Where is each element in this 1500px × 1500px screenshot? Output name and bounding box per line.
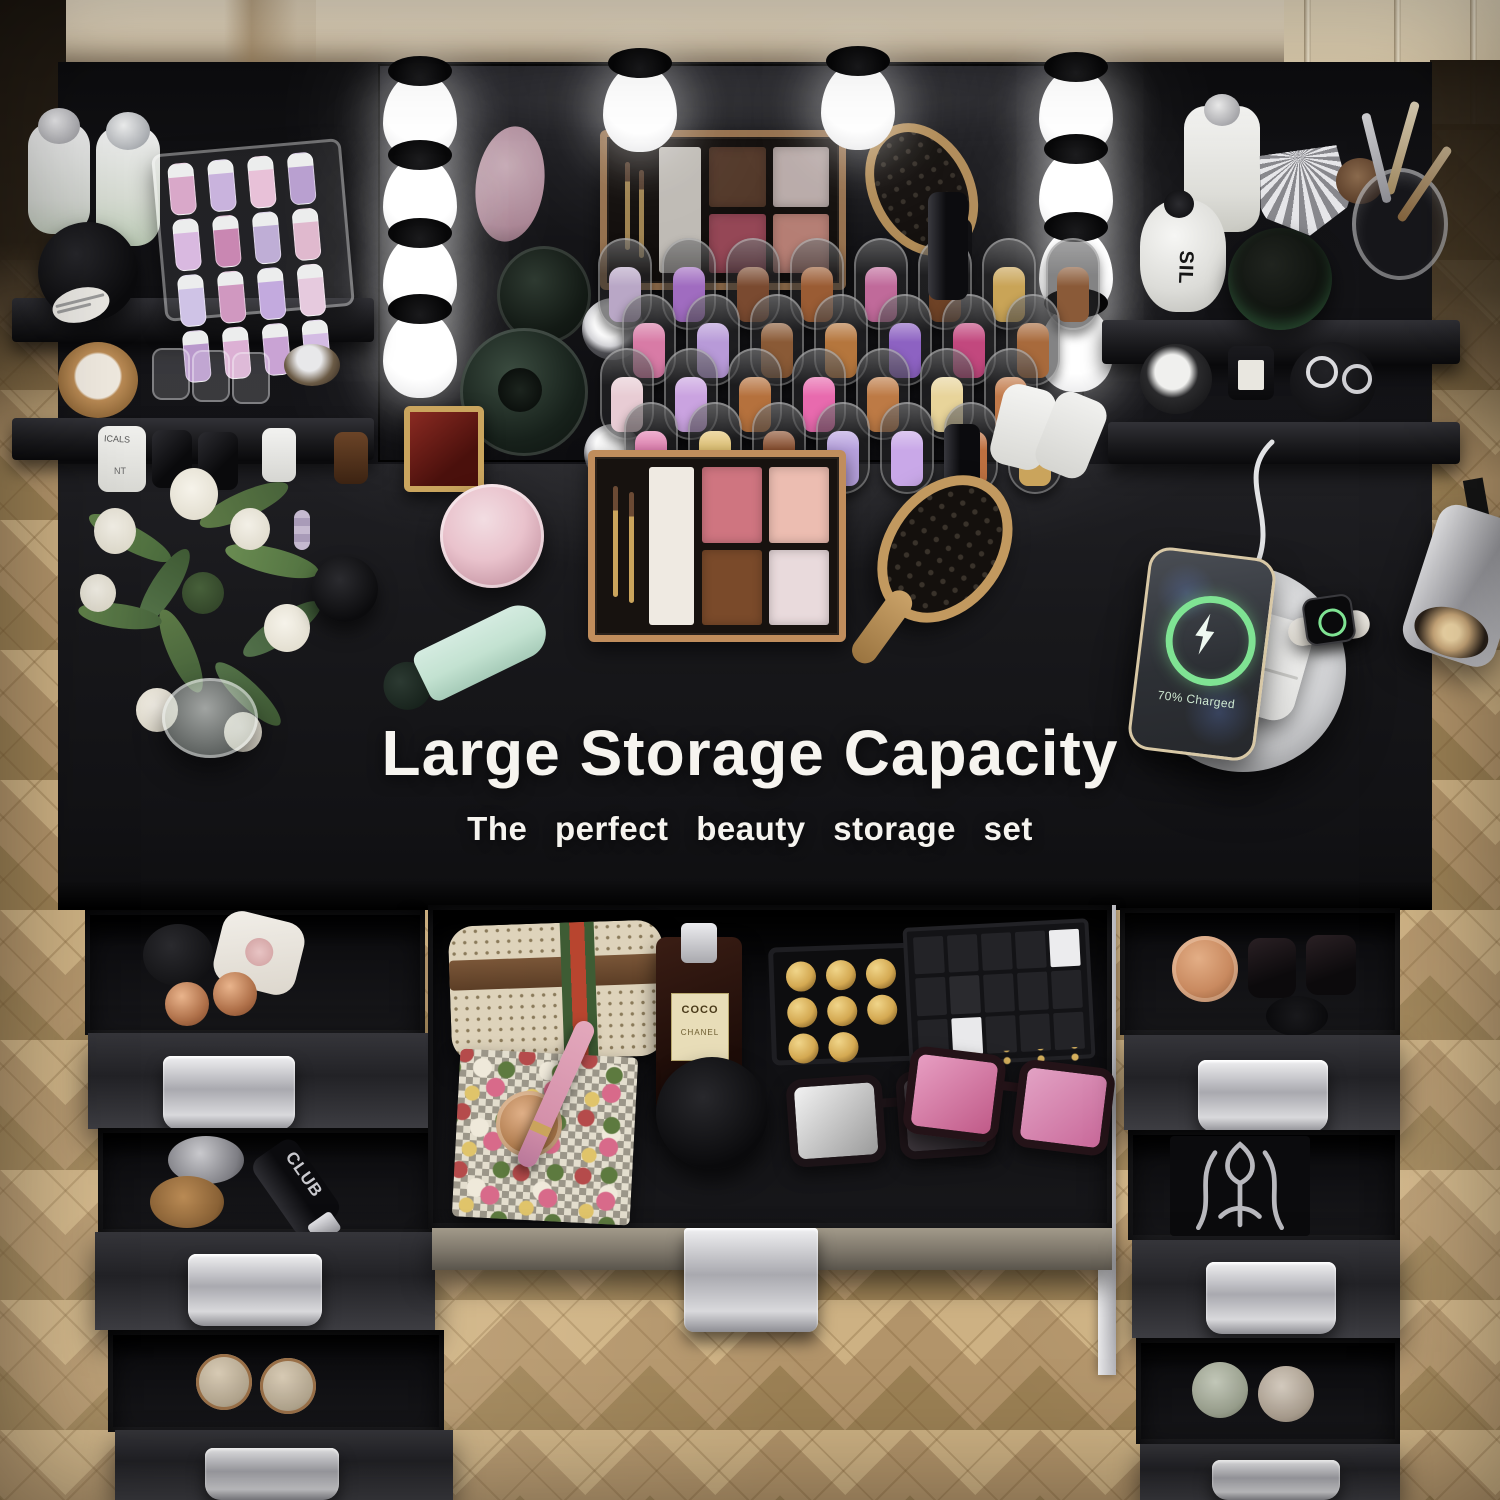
- vignette: [0, 0, 1500, 1500]
- scene: ICALS NT SIL: [0, 0, 1500, 1500]
